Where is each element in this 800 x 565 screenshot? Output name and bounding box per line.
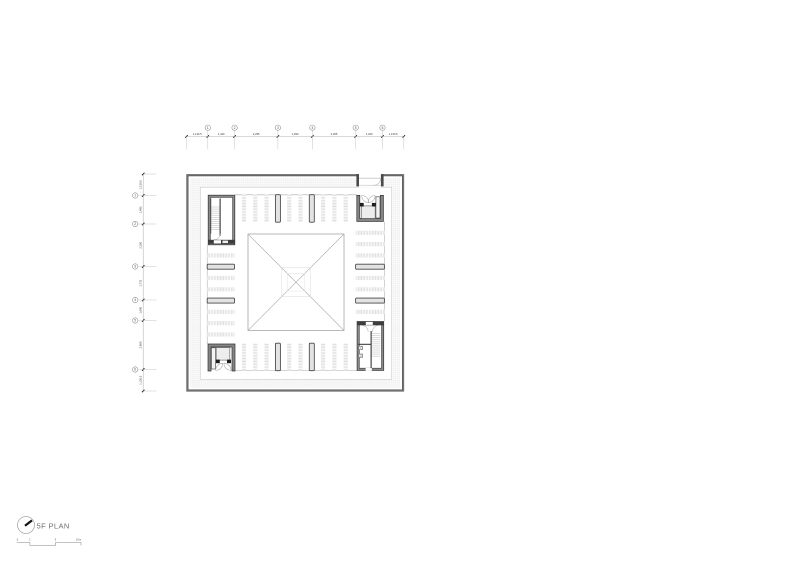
svg-text:3: 3 — [277, 126, 279, 130]
svg-text:6: 6 — [382, 126, 384, 130]
svg-text:1,495: 1,495 — [139, 206, 143, 213]
svg-text:1,775: 1,775 — [139, 279, 143, 286]
svg-text:1,130.5: 1,130.5 — [139, 375, 143, 384]
svg-text:1,830: 1,830 — [292, 132, 299, 136]
svg-text:2,295: 2,295 — [331, 132, 338, 136]
svg-text:2,600: 2,600 — [139, 341, 143, 348]
svg-text:2: 2 — [134, 222, 136, 226]
svg-text:3: 3 — [134, 265, 136, 269]
svg-text:1,130.5: 1,130.5 — [193, 132, 202, 136]
svg-text:10m: 10m — [76, 538, 81, 542]
svg-text:1: 1 — [207, 126, 209, 130]
svg-text:1,130.5: 1,130.5 — [139, 180, 143, 189]
svg-text:4: 4 — [312, 126, 314, 130]
svg-text:2,250: 2,250 — [139, 241, 143, 248]
svg-text:5F PLAN: 5F PLAN — [37, 522, 70, 531]
svg-text:5: 5 — [134, 319, 136, 323]
svg-text:5: 5 — [355, 126, 357, 130]
svg-text:1,130.5: 1,130.5 — [389, 132, 398, 136]
svg-text:1,420: 1,420 — [366, 132, 373, 136]
svg-text:2: 2 — [234, 126, 236, 130]
svg-text:1,090: 1,090 — [139, 306, 143, 313]
svg-text:6: 6 — [134, 368, 136, 372]
svg-text:1,420: 1,420 — [218, 132, 225, 136]
svg-text:1: 1 — [134, 194, 136, 198]
svg-text:4: 4 — [134, 298, 136, 302]
svg-text:2,295: 2,295 — [253, 132, 260, 136]
